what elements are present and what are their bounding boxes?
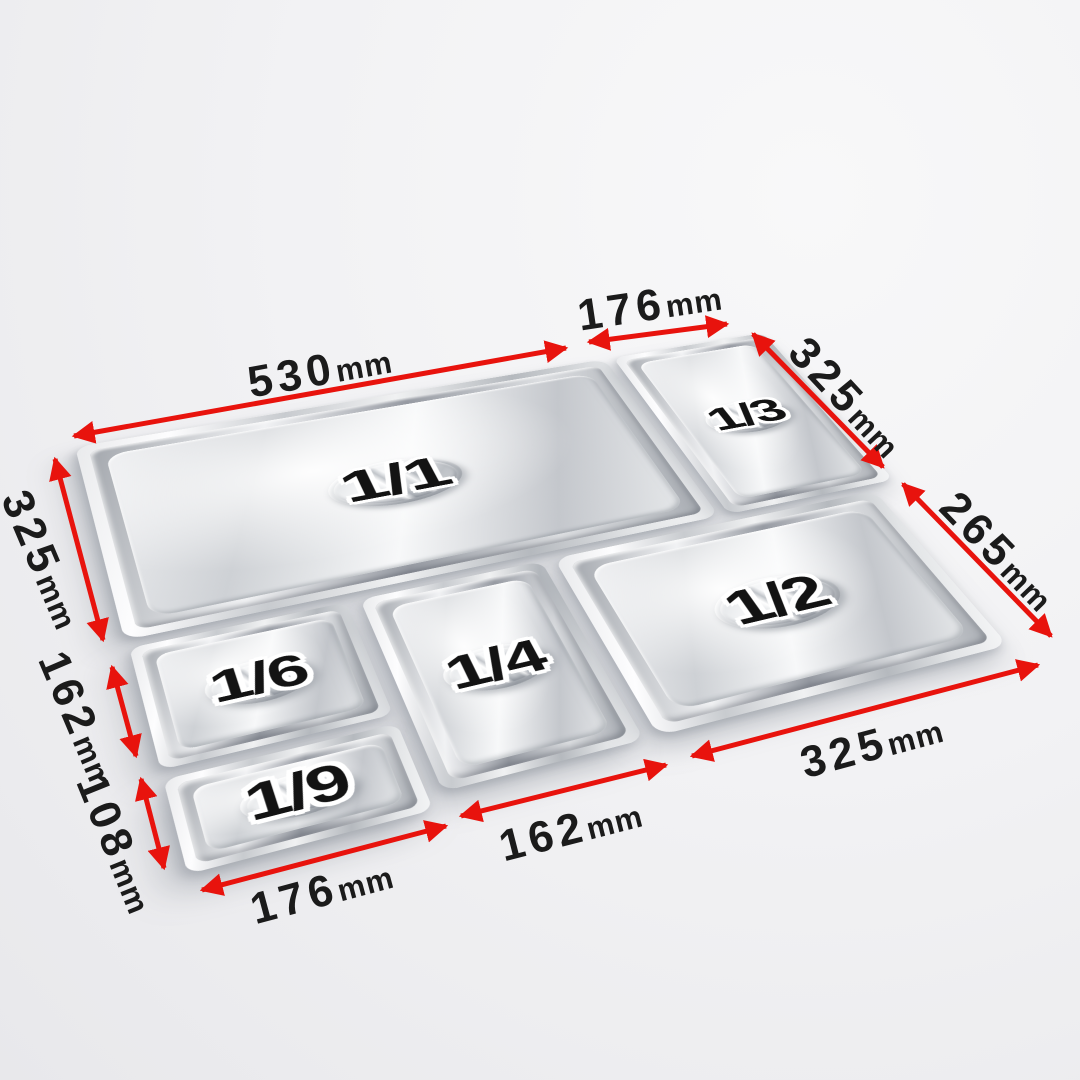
dim-value: 530 (244, 344, 340, 408)
dim-label-530-top: 530mm (244, 336, 395, 405)
dim-unit: mm (663, 281, 725, 324)
dim-label-325-bottom: 325mm (796, 706, 948, 786)
pan-arrangement: 1/1 1/3 1/6 1/4 1/9 (75, 333, 1045, 876)
product-dimension-diagram: 1/1 1/3 1/6 1/4 1/9 (0, 0, 1080, 1080)
dim-label-162-bottom: 162mm (495, 791, 647, 870)
dim-arrow-108-left (141, 779, 164, 868)
dim-value: 176 (574, 279, 669, 341)
dim-label-176-bottom: 176mm (246, 852, 398, 932)
dim-label-108-left: 108mm (68, 768, 163, 919)
dim-value: 325 (795, 718, 893, 788)
dim-unit: mm (883, 714, 947, 763)
dim-unit: mm (333, 344, 395, 389)
dim-value: 176 (245, 864, 343, 934)
dim-label-325-left: 325mm (0, 484, 91, 635)
dim-unit: mm (29, 569, 84, 635)
dim-value: 162 (494, 802, 592, 871)
dim-label-176-top: 176mm (575, 273, 725, 338)
dim-arrow-162-left (112, 667, 136, 756)
dim-unit: mm (583, 798, 647, 846)
dim-unit: mm (102, 853, 156, 919)
dim-unit: mm (333, 860, 397, 909)
